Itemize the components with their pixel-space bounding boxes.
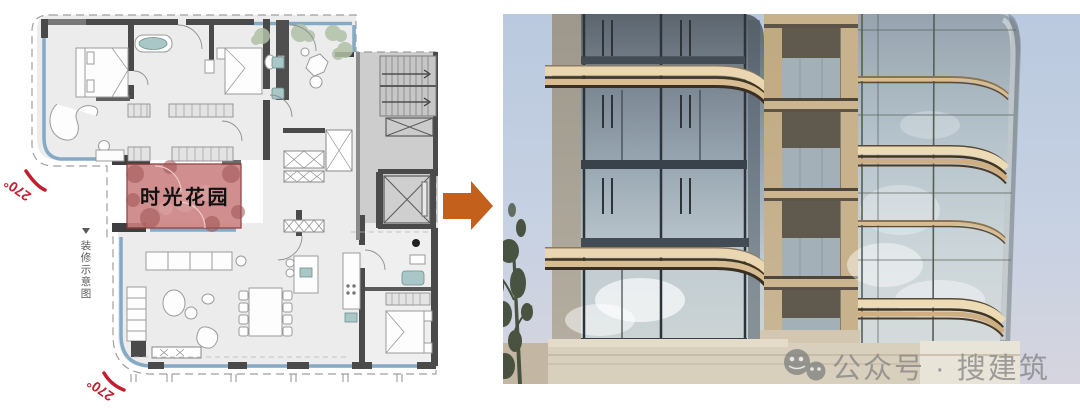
svg-text:意: 意: [81, 275, 92, 288]
svg-text:时光花园: 时光花园: [140, 186, 230, 209]
svg-text:270°: 270°: [1, 175, 34, 205]
svg-text:装: 装: [81, 239, 92, 252]
svg-text:图: 图: [81, 288, 92, 300]
svg-text:示: 示: [81, 264, 92, 276]
svg-text:270°: 270°: [84, 375, 117, 405]
svg-text:修: 修: [81, 251, 92, 264]
svg-text:公众号 · 搜建筑: 公众号 · 搜建筑: [832, 352, 1050, 385]
